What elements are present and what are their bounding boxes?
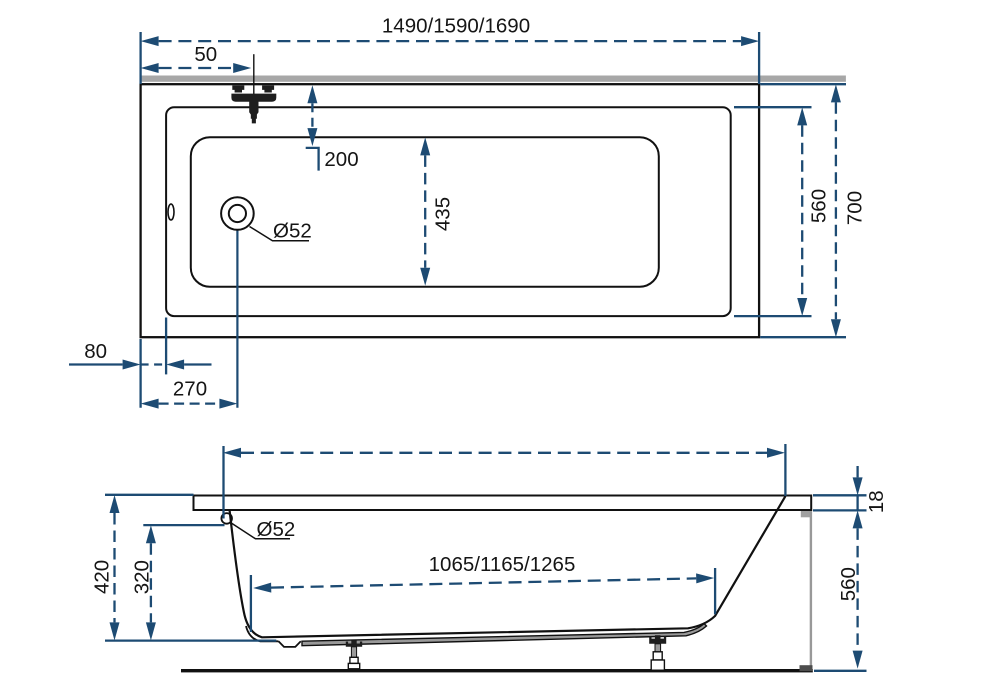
svg-text:200: 200	[324, 148, 358, 171]
svg-text:50: 50	[194, 43, 217, 66]
svg-text:80: 80	[84, 340, 107, 363]
svg-text:270: 270	[173, 378, 207, 401]
svg-text:435: 435	[431, 197, 454, 231]
svg-text:Ø52: Ø52	[257, 518, 296, 541]
svg-text:320: 320	[131, 560, 154, 594]
svg-text:1065/1165/1265: 1065/1165/1265	[429, 553, 576, 576]
svg-text:560: 560	[837, 567, 860, 601]
svg-text:700: 700	[844, 191, 867, 225]
svg-text:Ø52: Ø52	[273, 220, 312, 243]
svg-text:18: 18	[865, 490, 888, 513]
svg-text:560: 560	[808, 189, 831, 223]
svg-text:1490/1590/1690: 1490/1590/1690	[382, 15, 530, 38]
svg-text:420: 420	[91, 560, 114, 594]
